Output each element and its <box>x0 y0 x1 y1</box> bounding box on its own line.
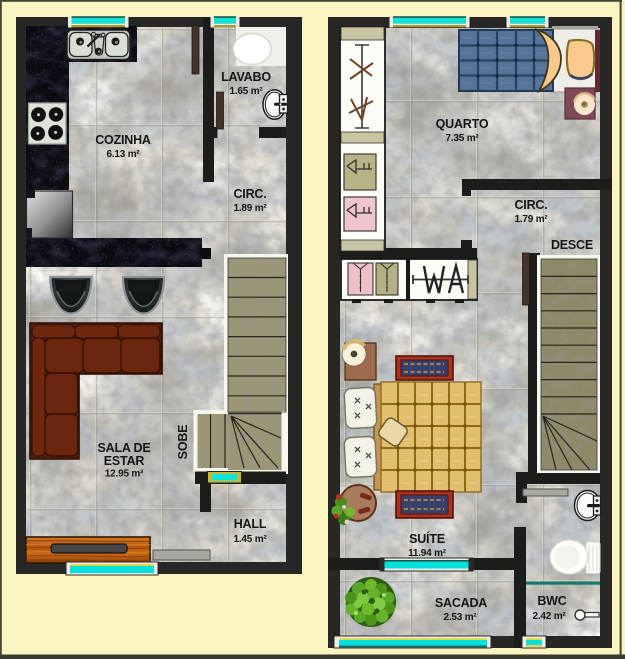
svg-text:11.94 m²: 11.94 m² <box>408 548 447 559</box>
svg-text:7.35 m²: 7.35 m² <box>445 133 479 144</box>
svg-text:2.42 m²: 2.42 m² <box>532 611 566 622</box>
svg-text:SACADA: SACADA <box>435 596 487 610</box>
svg-text:6.13 m²: 6.13 m² <box>106 149 140 160</box>
svg-text:HALL: HALL <box>234 517 267 531</box>
svg-text:12.95 m²: 12.95 m² <box>105 469 144 480</box>
svg-text:ESTAR: ESTAR <box>104 454 145 468</box>
svg-text:1.45 m²: 1.45 m² <box>233 534 267 545</box>
svg-text:CIRC.: CIRC. <box>514 198 547 212</box>
svg-text:2.53 m²: 2.53 m² <box>443 612 477 623</box>
svg-text:DESCE: DESCE <box>551 238 593 252</box>
svg-text:SOBE: SOBE <box>176 425 190 460</box>
svg-text:QUARTO: QUARTO <box>436 117 489 131</box>
svg-text:CIRC.: CIRC. <box>233 187 266 201</box>
svg-text:COZINHA: COZINHA <box>95 133 151 147</box>
svg-text:LAVABO: LAVABO <box>221 70 271 84</box>
svg-text:1.79 m²: 1.79 m² <box>514 214 548 225</box>
svg-text:1.65 m²: 1.65 m² <box>229 86 263 97</box>
svg-text:1.89 m²: 1.89 m² <box>233 203 267 214</box>
svg-text:SUÍTE: SUÍTE <box>409 531 445 546</box>
svg-text:BWC: BWC <box>537 594 566 608</box>
svg-text:SALA DE: SALA DE <box>97 441 150 455</box>
